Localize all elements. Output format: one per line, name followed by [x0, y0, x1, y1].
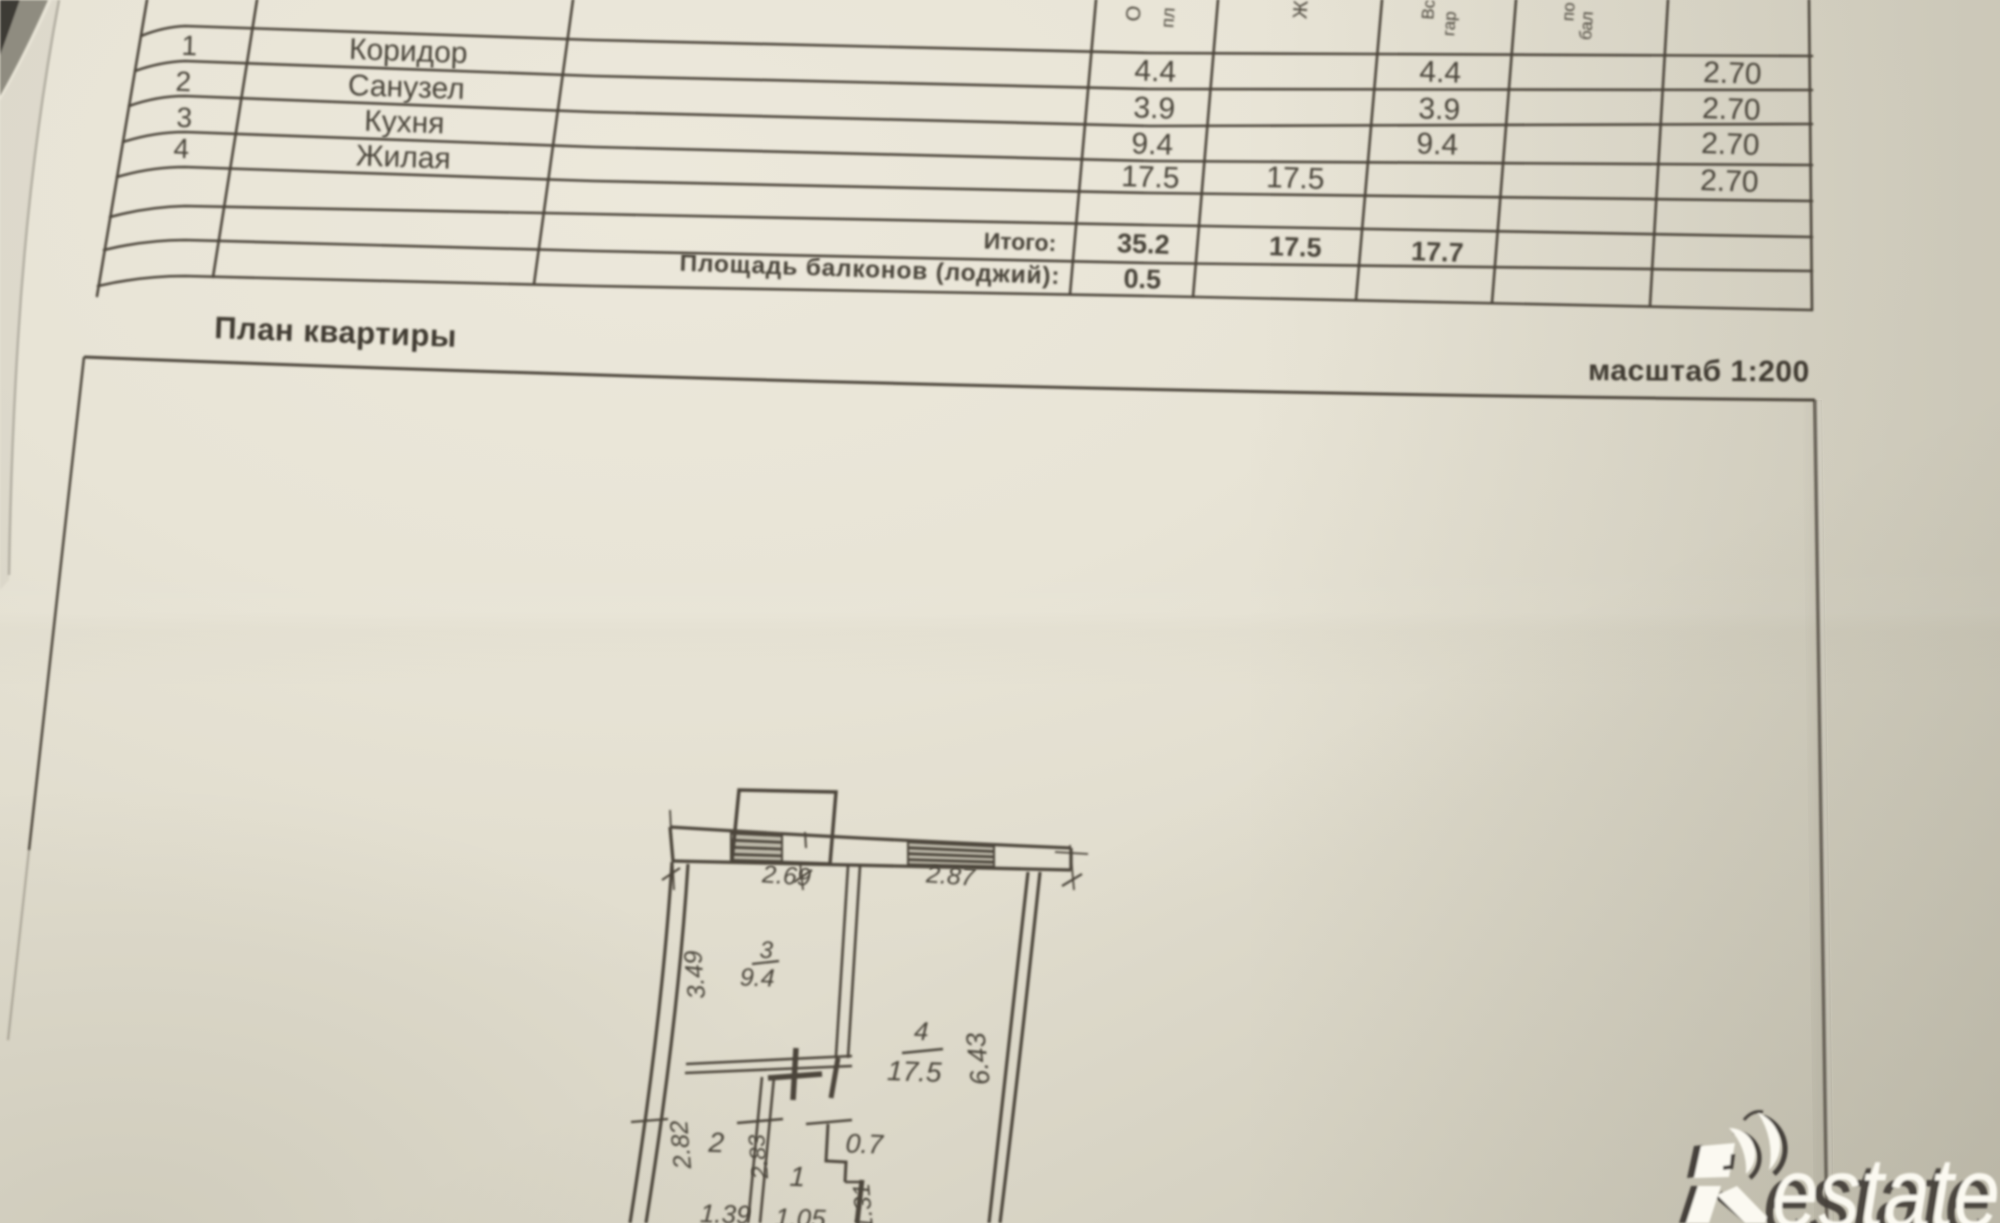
svg-text:1: 1 — [789, 1161, 806, 1193]
svg-text:3.9: 3.9 — [1418, 92, 1461, 126]
svg-text:4.4: 4.4 — [1419, 55, 1462, 89]
svg-text:9.4: 9.4 — [1416, 127, 1459, 161]
svg-text:17.5: 17.5 — [1269, 231, 1323, 263]
svg-text:О: О — [1122, 5, 1145, 22]
svg-text:2.70: 2.70 — [1700, 164, 1760, 199]
svg-text:2.82: 2.82 — [665, 1119, 697, 1171]
svg-text:17.7: 17.7 — [1411, 236, 1465, 268]
svg-text:3: 3 — [176, 102, 193, 134]
svg-text:17.5: 17.5 — [887, 1055, 943, 1088]
svg-text:Санузел: Санузел — [347, 69, 465, 106]
svg-text:Кухня: Кухня — [364, 105, 445, 141]
svg-text:2.70: 2.70 — [1701, 127, 1761, 162]
svg-text:0.5: 0.5 — [1123, 263, 1162, 294]
svg-text:1: 1 — [181, 30, 198, 62]
svg-text:9.4: 9.4 — [1131, 127, 1174, 161]
svg-text:Вс: Вс — [1418, 0, 1438, 20]
svg-text:35.2: 35.2 — [1117, 228, 1171, 260]
svg-text:9.4: 9.4 — [739, 963, 775, 992]
svg-text:4: 4 — [173, 133, 190, 165]
svg-text:Коридор: Коридор — [349, 33, 469, 70]
svg-text:гар: гар — [1439, 11, 1460, 37]
svg-text:Итого:: Итого: — [983, 227, 1056, 256]
svg-text:1.05: 1.05 — [775, 1202, 827, 1223]
svg-text:4.4: 4.4 — [1134, 54, 1177, 88]
svg-text:0.7: 0.7 — [845, 1128, 885, 1159]
svg-text:2.83: 2.83 — [743, 1133, 773, 1181]
svg-text:2.70: 2.70 — [1703, 56, 1763, 91]
svg-text:estate: estate — [1772, 1137, 2000, 1223]
svg-text:2: 2 — [175, 66, 192, 98]
svg-text:1.31: 1.31 — [848, 1182, 879, 1223]
svg-text:2.87: 2.87 — [924, 860, 977, 891]
svg-text:2: 2 — [707, 1127, 725, 1159]
svg-text:1.39: 1.39 — [700, 1198, 752, 1223]
svg-text:бал: бал — [1576, 11, 1597, 41]
svg-text:4: 4 — [914, 1016, 930, 1046]
svg-text:3: 3 — [759, 937, 774, 964]
svg-text:масштаб 1:200: масштаб 1:200 — [1588, 354, 1810, 389]
svg-text:Ж: Ж — [1289, 0, 1312, 20]
svg-text:3.9: 3.9 — [1133, 91, 1176, 125]
svg-text:по: по — [1558, 2, 1578, 22]
svg-text:17.5: 17.5 — [1121, 160, 1181, 195]
svg-text:2.69: 2.69 — [760, 860, 812, 891]
svg-text:2.70: 2.70 — [1702, 92, 1762, 127]
svg-text:3.49: 3.49 — [679, 949, 711, 1000]
svg-text:6.43: 6.43 — [960, 1031, 995, 1086]
svg-text:Жилая: Жилая — [355, 139, 451, 175]
svg-text:пл: пл — [1157, 7, 1178, 29]
svg-text:17.5: 17.5 — [1266, 161, 1326, 196]
